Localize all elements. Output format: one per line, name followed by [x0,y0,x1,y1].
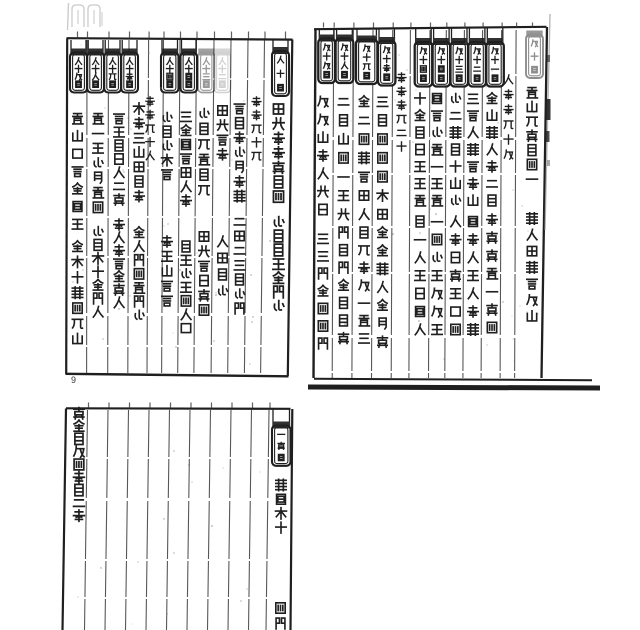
svg-text:9: 9 [71,375,76,385]
